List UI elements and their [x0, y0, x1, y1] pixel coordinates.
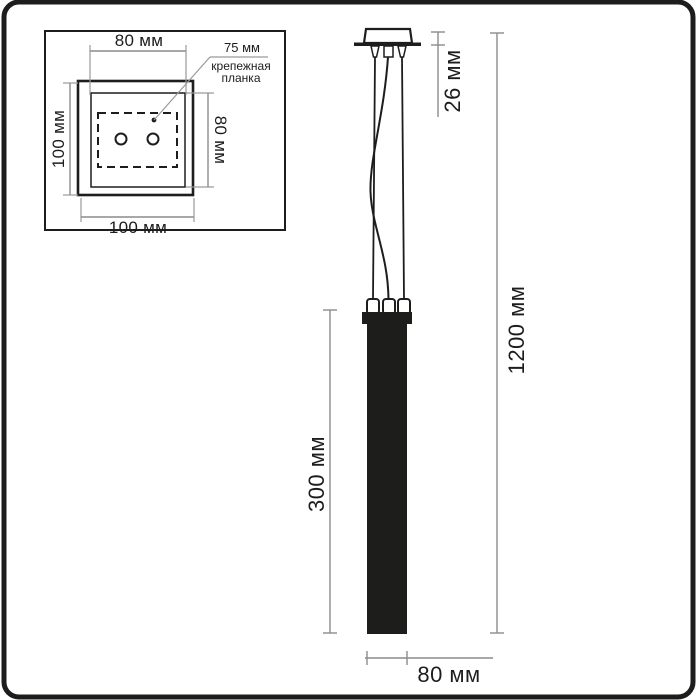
callout-text-line2: планка	[222, 71, 261, 85]
shade-cylinder-body	[367, 322, 407, 634]
screw-hole-left	[116, 134, 127, 145]
callout-value-label: 75 мм	[224, 40, 260, 55]
canopy-inner-square	[91, 93, 185, 187]
shade-grip-middle	[383, 299, 395, 314]
dim-shade-height: 300 мм	[304, 310, 337, 633]
inset-dim-top: 80 мм	[90, 31, 186, 95]
inset-dim-bottom-label: 100 мм	[109, 218, 167, 237]
dim-overall-height: 1200 мм	[490, 33, 529, 633]
wire-grip-right	[398, 46, 406, 57]
dim-canopy-height-label: 26 мм	[440, 49, 465, 112]
diagram-page: 80 мм 100 мм 80 мм 100 мм	[0, 0, 700, 700]
dim-shade-width-label: 80 мм	[417, 662, 480, 687]
inset-dim-left: 100 мм	[49, 83, 78, 195]
inset-dim-right-label: 80 мм	[211, 116, 230, 165]
mounting-plate-dashed-outline	[98, 113, 177, 167]
cable-connector-top	[384, 46, 393, 57]
image-border-frame	[4, 2, 693, 697]
inset-dim-top-label: 80 мм	[115, 31, 164, 50]
wire-grip-left	[371, 46, 379, 57]
dim-shade-height-label: 300 мм	[304, 436, 329, 512]
dim-shade-width: 80 мм	[365, 651, 493, 687]
shade-grip-left	[367, 299, 379, 314]
inset-dim-left-label: 100 мм	[49, 110, 68, 168]
dim-overall-height-label: 1200 мм	[504, 286, 529, 375]
shade-grip-right	[398, 299, 410, 314]
canopy-outer-square	[78, 81, 193, 195]
screw-hole-right	[148, 134, 159, 145]
side-view: 26 мм 1200 мм 300 мм 80 мм	[304, 29, 529, 687]
inset-dim-bottom: 100 мм	[81, 198, 194, 237]
dim-canopy-height: 26 мм	[431, 32, 465, 117]
ceiling-canopy	[364, 29, 412, 43]
suspension-wire-right	[402, 57, 404, 299]
top-view-inset: 80 мм 100 мм 80 мм 100 мм	[45, 31, 285, 237]
diagram-canvas: 80 мм 100 мм 80 мм 100 мм	[0, 0, 700, 700]
suspension-wire-left	[373, 57, 375, 299]
